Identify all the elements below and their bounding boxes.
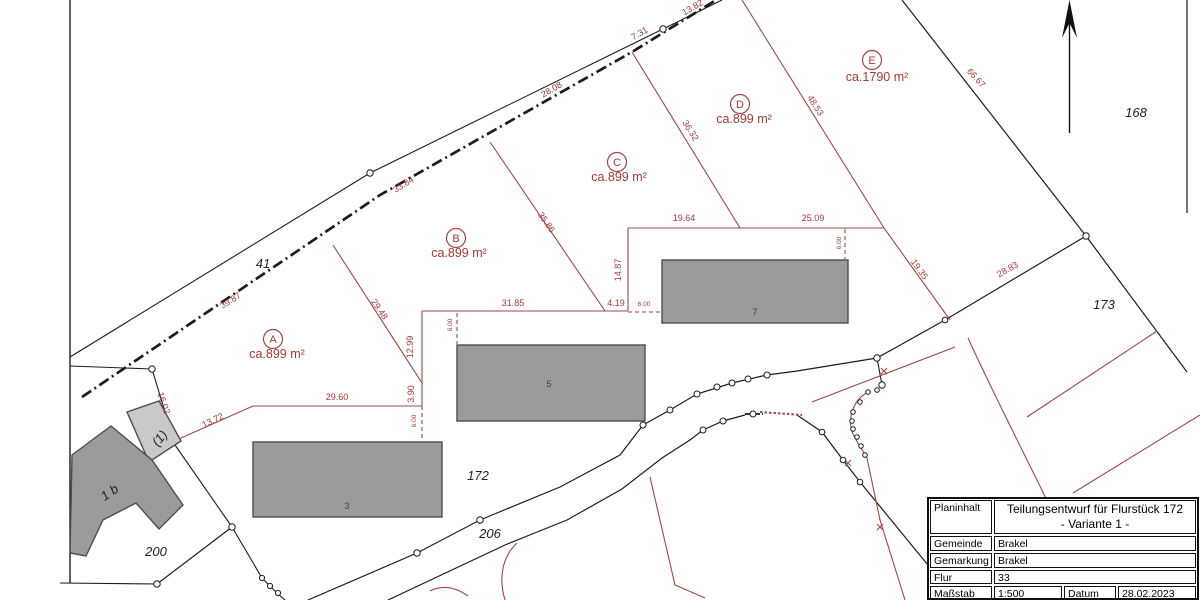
parcel-area: ca.899 m²: [716, 112, 772, 126]
measurement: 33.84: [391, 174, 415, 194]
parcel-area: ca.899 m²: [431, 246, 487, 260]
parcel-letter: B: [452, 233, 459, 245]
parcel-number-172: 172: [467, 468, 489, 483]
measurement: 19.35: [909, 257, 930, 281]
title-block: Planinhalt Teilungsentwurf für Flurstück…: [927, 497, 1199, 600]
gemeinde-value: Brakel: [994, 536, 1196, 551]
measurement-6m: 6.00: [638, 301, 651, 308]
measurement: 29.48: [369, 297, 390, 321]
parcel-letter: C: [613, 157, 621, 169]
measurement: 14.87: [613, 259, 623, 282]
measurement: 36.32: [680, 118, 700, 142]
measurement: 48.53: [805, 93, 825, 117]
parcel-area: ca.1790 m²: [846, 70, 909, 84]
measurement: 28.08: [539, 79, 564, 99]
parcel-number-41: 41: [256, 256, 270, 271]
parcel-area: ca.899 m²: [591, 170, 647, 184]
north-arrow-icon: [1062, 0, 1077, 133]
plan-title: Teilungsentwurf für Flurstück 172 - Vari…: [994, 500, 1196, 534]
massstab-label: Maßstab: [930, 586, 992, 600]
measurement: 25.09: [802, 213, 825, 223]
gemeinde-label: Gemeinde: [930, 536, 992, 551]
measurement: 7.31: [629, 25, 649, 42]
title-block-label: Planinhalt: [930, 500, 992, 534]
measurement: 35.86: [536, 210, 557, 234]
flur-label: Flur: [930, 570, 992, 584]
measurement: 66.67: [965, 66, 988, 89]
parcel-number-173: 173: [1093, 297, 1115, 312]
dash-dot-boundary: [82, 0, 716, 397]
massstab-value: 1:500: [994, 586, 1062, 600]
measurement: 28.83: [995, 260, 1020, 280]
datum-value: 28.02.2023: [1118, 586, 1196, 600]
building-number-7: 7: [752, 307, 757, 317]
flur-value: 33: [994, 570, 1196, 584]
parcel-area: ca.899 m²: [249, 347, 305, 361]
gemarkung-value: Brakel: [994, 553, 1196, 568]
cadastral-plan: 39.87 33.84 28.08 7.31 13.82 29.48 12.99…: [0, 0, 1200, 600]
measurement-6m: 6.00: [836, 236, 843, 249]
measurement-6m: 6.00: [411, 414, 418, 427]
building-number-5: 5: [546, 379, 551, 389]
measurement: 3.90: [406, 385, 416, 403]
measurement: 31.85: [502, 298, 525, 308]
measurement: 4.19: [607, 298, 625, 308]
measurement-6m: 6.00: [447, 318, 454, 331]
measurement: 12.99: [405, 336, 415, 359]
parcel-letter: E: [868, 55, 875, 67]
measurement: 29.60: [326, 392, 349, 402]
parcel-letter: A: [269, 334, 277, 346]
measurement: 19.64: [673, 213, 696, 223]
building-number-3: 3: [344, 501, 349, 511]
gemarkung-label: Gemarkung: [930, 553, 992, 568]
measurement: 13.72: [200, 411, 225, 430]
datum-label: Datum: [1064, 586, 1116, 600]
parcel-letter: D: [736, 99, 744, 111]
measurement: 39.87: [218, 290, 242, 310]
buildings: [70, 260, 848, 556]
parcel-number-168: 168: [1125, 105, 1147, 120]
parcel-number-200: 200: [144, 544, 167, 559]
parcel-number-206: 206: [478, 526, 501, 541]
